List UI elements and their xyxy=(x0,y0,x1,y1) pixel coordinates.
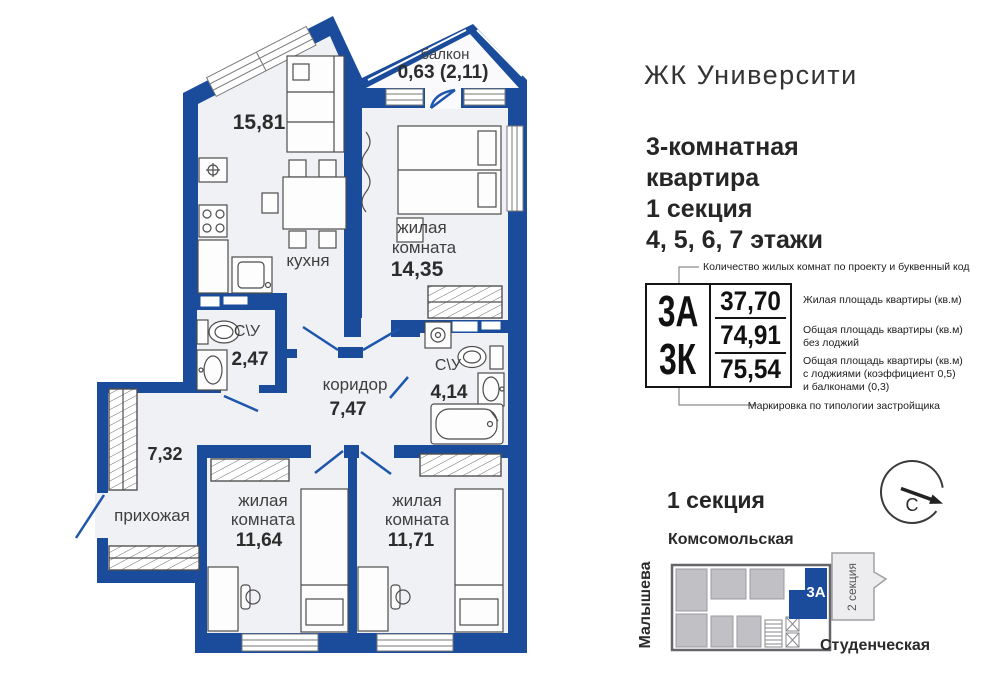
stairs-icon xyxy=(765,620,782,647)
wardrobe-bedroom1 xyxy=(428,286,502,318)
room-label-bedroom1-l1: жилая xyxy=(397,218,446,238)
legend-bottom-note: Маркировка по типологии застройщика xyxy=(748,400,940,412)
kitchen-vent-icon xyxy=(199,158,227,182)
legend-top-note: Количество жилых комнат по проекту и бук… xyxy=(703,261,969,273)
total-area-balcony-l3: и балконами (0,3) xyxy=(803,381,963,394)
total-area-label-l2: без лоджий xyxy=(803,337,963,350)
living-area-label: Жилая площадь квартиры (кв.м) xyxy=(803,294,962,307)
kitchen-sofa xyxy=(287,56,344,152)
type-code-project: 3А xyxy=(658,288,699,336)
type-codes: 3А 3К xyxy=(647,285,711,386)
area-legend-box: 3А 3К 37,70 74,91 75,54 xyxy=(645,283,792,388)
room-area-storage: 7,32 xyxy=(147,444,182,465)
total-area-value: 74,91 xyxy=(715,317,786,351)
room-label-bath2: С\У xyxy=(435,357,461,375)
bed-bedroom2 xyxy=(301,489,348,632)
area-values: 37,70 74,91 75,54 xyxy=(711,285,790,386)
apartment-line1: 3-комнатная xyxy=(646,132,823,163)
living-area-value: 37,70 xyxy=(715,285,786,317)
flyer-canvas: балкон 0,63 (2,11) 15,81 кухня жилая ком… xyxy=(0,0,990,700)
type-code-developer: 3К xyxy=(660,336,697,384)
highlighted-unit-label: 3А xyxy=(801,584,831,601)
total-area-with-balcony-label: Общая площадь квартиры (кв.м) с лоджиями… xyxy=(803,355,963,394)
street-left: Малышева xyxy=(637,561,655,648)
room-area-bedroom1: 14,35 xyxy=(391,258,444,282)
apartment-summary: 3-комнатная квартира 1 секция 4, 5, 6, 7… xyxy=(646,132,823,256)
apartment-line2: квартира xyxy=(646,163,823,194)
toilet-icon-2 xyxy=(458,346,503,369)
stove-icon xyxy=(199,205,227,237)
room-label-corridor: коридор xyxy=(323,375,388,395)
total-area-label: Общая площадь квартиры (кв.м) без лоджий xyxy=(803,324,963,350)
sink-icon-1 xyxy=(197,350,227,390)
section2-block xyxy=(832,553,886,620)
room-label-balcony: балкон xyxy=(421,46,470,63)
total-area-label-l1: Общая площадь квартиры (кв.м) xyxy=(803,324,963,337)
room-label-bedroom3-l2: комната xyxy=(385,510,449,530)
bathtub-icon xyxy=(431,404,503,444)
room-label-bedroom1-l2: комната xyxy=(392,238,456,258)
room-label-bedroom2-l1: жилая xyxy=(238,491,287,511)
kitchen-sink-icon xyxy=(232,257,272,293)
street-top: Комсомольская xyxy=(668,531,794,549)
wardrobe-bedroom3 xyxy=(420,454,501,476)
room-label-hall: прихожая xyxy=(114,506,190,526)
toilet-icon-1 xyxy=(197,320,239,344)
room-label-kitchen: кухня xyxy=(286,251,329,271)
room-area-corridor: 7,47 xyxy=(330,399,367,421)
kitchen-counter xyxy=(198,240,228,293)
room-area-bedroom3: 11,71 xyxy=(388,530,435,552)
bed-bedroom3 xyxy=(455,489,503,632)
room-area-kitchen: 15,81 xyxy=(233,111,286,135)
room-label-bedroom3-l1: жилая xyxy=(392,491,441,511)
room-area-bedroom2: 11,64 xyxy=(236,530,283,552)
room-label-bedroom2-l2: комната xyxy=(231,510,295,530)
floor-plan-graphic xyxy=(0,0,990,700)
room-area-bath1: 2,47 xyxy=(232,349,269,371)
section2-label: 2 секция xyxy=(845,563,859,611)
apartment-line4: 4, 5, 6, 7 этажи xyxy=(646,225,823,256)
room-label-bath1: С\У xyxy=(234,323,260,341)
wardrobe-hall xyxy=(109,546,199,570)
total-area-with-balcony-value: 75,54 xyxy=(715,352,786,386)
apartment-line3: 1 секция xyxy=(646,194,823,225)
wardrobe-storage xyxy=(109,389,137,490)
total-area-balcony-l2: с лоджиями (коэффициент 0,5) xyxy=(803,368,963,381)
complex-title: ЖК Университи xyxy=(644,60,858,91)
compass-north-label: С xyxy=(906,495,919,516)
minimap-title: 1 секция xyxy=(667,487,765,514)
street-bottom: Студенческая xyxy=(820,637,930,655)
room-area-bath2: 4,14 xyxy=(431,382,468,404)
washing-machine-icon xyxy=(425,322,451,348)
sink-icon-2 xyxy=(478,373,504,406)
total-area-balcony-l1: Общая площадь квартиры (кв.м) xyxy=(803,355,963,368)
room-area-balcony: 0,63 (2,11) xyxy=(398,62,489,84)
wardrobe-bedroom2 xyxy=(211,459,289,481)
